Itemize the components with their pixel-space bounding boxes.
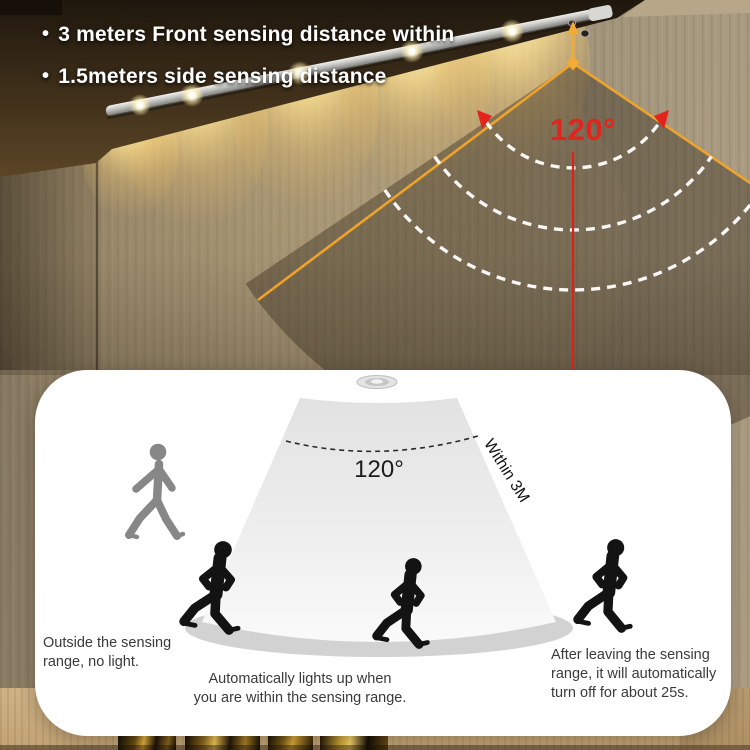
bullet-icon: • — [42, 64, 49, 89]
caption-line: After leaving the sensing — [551, 646, 716, 665]
ceiling-dark-corner — [0, 0, 62, 15]
light-cone — [202, 398, 556, 642]
bullet-icon: • — [42, 22, 49, 47]
fan-angle-label: 120° — [541, 112, 625, 148]
walking-person-icon — [129, 444, 183, 537]
feature-bullet-front-distance: • 3 meters Front sensing distance within — [42, 22, 454, 48]
caption-auto-off: After leaving the sensing range, it will… — [551, 646, 716, 703]
feature-bullet-text: 1.5meters side sensing distance — [58, 64, 386, 90]
feature-bullet-text: 3 meters Front sensing distance within — [58, 22, 454, 48]
end-cap-dot — [581, 30, 589, 37]
recessed-sensor-icon — [357, 376, 397, 389]
ceiling-edge-strip — [622, 0, 750, 17]
caption-line: range, it will automatically — [551, 665, 716, 684]
runner-right-icon — [578, 539, 630, 628]
caption-line: range, no light. — [43, 653, 171, 672]
feature-bullet-side-distance: • 1.5meters side sensing distance — [42, 64, 387, 90]
left-wall-face — [0, 160, 97, 370]
sensing-diagram-panel: 120° Within 3M Outside the sensing range… — [35, 370, 731, 736]
caption-line: turn off for about 25s. — [551, 684, 716, 703]
caption-lights-up: Automatically lights up when you are wit… — [175, 670, 425, 708]
caption-outside-range: Outside the sensing range, no light. — [43, 634, 171, 672]
shelf-shadow-line — [0, 745, 750, 750]
cone-angle-label: 120° — [337, 456, 421, 484]
caption-line: Outside the sensing — [43, 634, 171, 653]
caption-line: Automatically lights up when — [175, 670, 425, 689]
caption-line: you are within the sensing range. — [175, 689, 425, 708]
product-infographic: • 3 meters Front sensing distance within… — [0, 0, 750, 750]
